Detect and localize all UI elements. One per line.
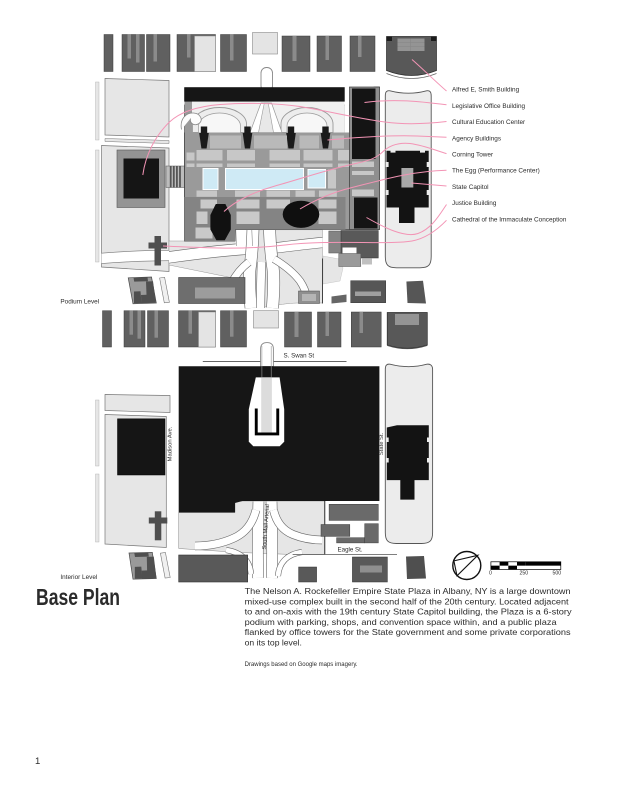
svg-text:Cathedral of the Immaculate Co: Cathedral of the Immaculate Conception bbox=[452, 216, 567, 223]
svg-text:Justice Building: Justice Building bbox=[452, 200, 497, 207]
svg-text:0: 0 bbox=[489, 571, 492, 577]
svg-text:State St.: State St. bbox=[379, 432, 385, 455]
svg-text:Interior Level: Interior Level bbox=[60, 574, 97, 581]
svg-text:Agency Buildings: Agency Buildings bbox=[452, 135, 501, 142]
svg-text:to and on-axis with the 19th c: to and on-axis with the 19th century Sta… bbox=[245, 607, 573, 617]
svg-text:State Capitol: State Capitol bbox=[452, 184, 489, 191]
svg-text:flanked by office towers for t: flanked by office towers for the State g… bbox=[245, 627, 571, 637]
svg-text:S. Swan St: S. Swan St bbox=[284, 353, 315, 360]
svg-text:Alfred E, Smith Building: Alfred E, Smith Building bbox=[452, 87, 520, 94]
svg-text:1: 1 bbox=[35, 756, 40, 767]
svg-text:Base Plan: Base Plan bbox=[36, 584, 120, 610]
svg-text:500: 500 bbox=[553, 571, 562, 577]
svg-text:Drawings based on Google maps: Drawings based on Google maps imagery. bbox=[245, 662, 358, 668]
svg-text:250: 250 bbox=[520, 571, 529, 577]
svg-text:on its top level.: on its top level. bbox=[245, 638, 302, 648]
svg-text:Legislative Office Building: Legislative Office Building bbox=[452, 103, 526, 110]
svg-text:mixed-use complex built in the: mixed-use complex built in the second ha… bbox=[245, 596, 570, 606]
svg-text:The Egg (Performance Center): The Egg (Performance Center) bbox=[452, 168, 540, 175]
svg-text:Madison Ave.: Madison Ave. bbox=[168, 426, 174, 461]
svg-text:Cultural Education Center: Cultural Education Center bbox=[452, 119, 526, 126]
svg-text:Eagle St.: Eagle St. bbox=[338, 547, 363, 554]
svg-text:Podium Level: Podium Level bbox=[60, 299, 99, 306]
svg-text:The Nelson A. Rockefeller Empi: The Nelson A. Rockefeller Empire State P… bbox=[245, 586, 571, 596]
svg-text:Corning Tower: Corning Tower bbox=[452, 152, 494, 159]
svg-text:podium with parking, shops, an: podium with parking, shops, and conventi… bbox=[245, 617, 557, 627]
